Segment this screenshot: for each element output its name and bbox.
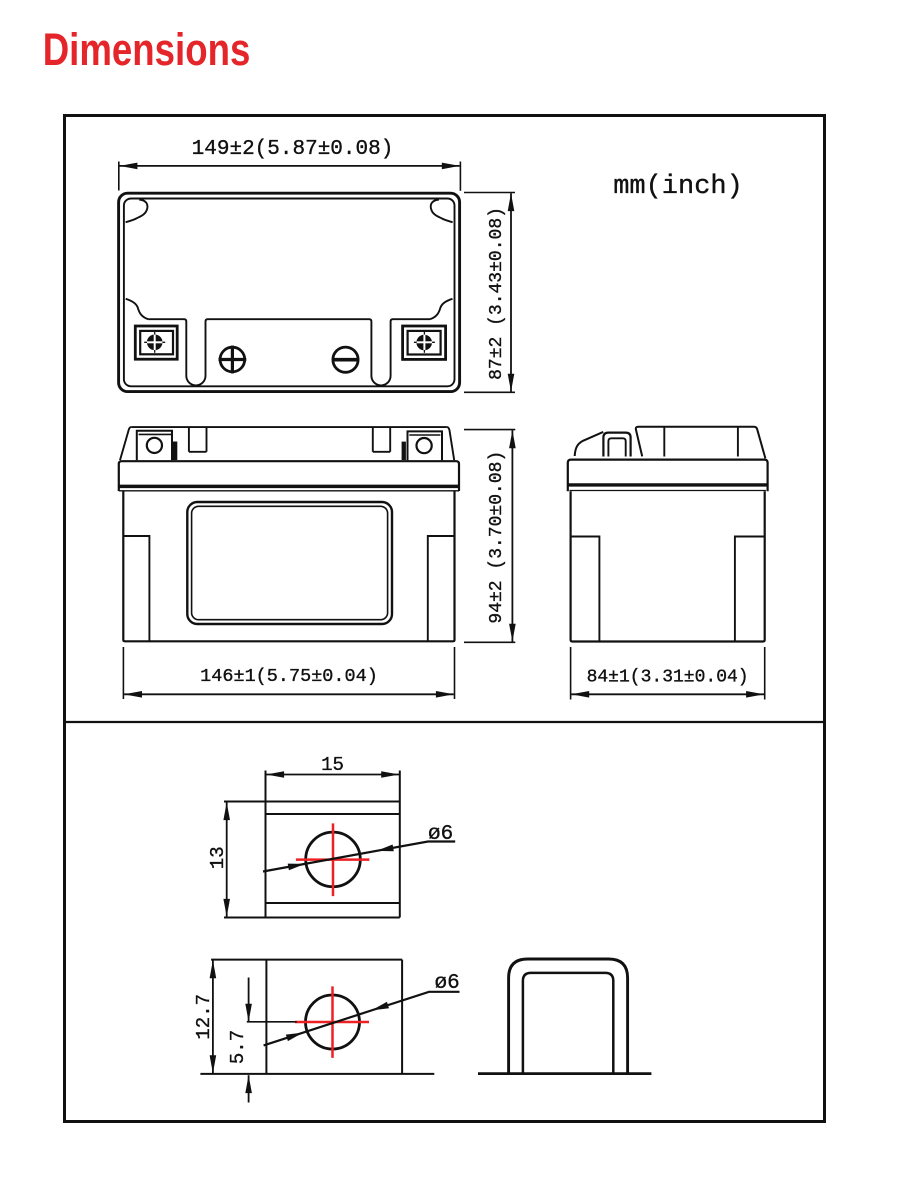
svg-text:15: 15: [321, 754, 344, 776]
svg-text:12.7: 12.7: [193, 994, 215, 1040]
svg-text:mm(inch): mm(inch): [613, 172, 743, 202]
svg-text:84±1(3.31±0.04): 84±1(3.31±0.04): [587, 668, 749, 688]
svg-text:5.7: 5.7: [227, 1030, 249, 1064]
svg-text:146±1(5.75±0.04): 146±1(5.75±0.04): [200, 666, 378, 687]
svg-text:Dimensions: Dimensions: [43, 24, 251, 75]
svg-text:94±2 (3.70±0.08): 94±2 (3.70±0.08): [487, 451, 507, 624]
svg-text:ø6: ø6: [435, 972, 460, 995]
svg-text:87±2 (3.43±0.08): 87±2 (3.43±0.08): [487, 207, 507, 380]
svg-text:149±2(5.87±0.08): 149±2(5.87±0.08): [192, 138, 394, 161]
svg-text:13: 13: [207, 846, 229, 869]
svg-text:ø6: ø6: [428, 823, 453, 846]
